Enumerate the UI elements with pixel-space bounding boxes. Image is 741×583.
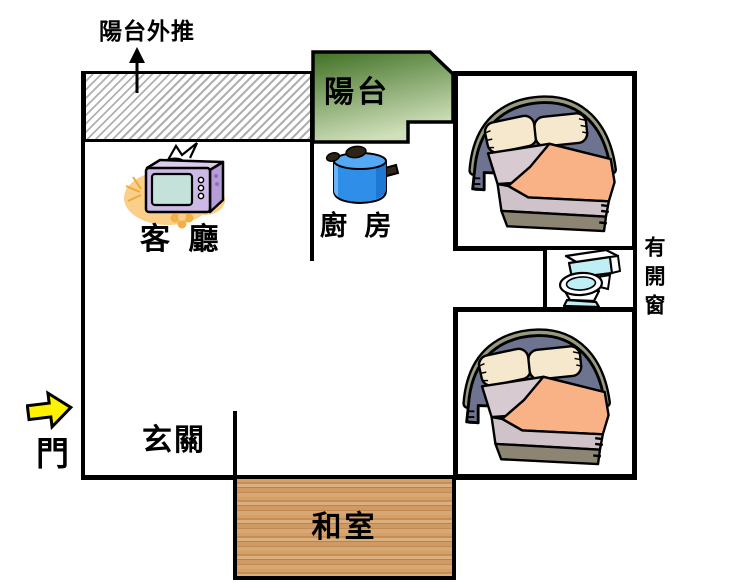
double-bed-icon [459, 320, 622, 470]
double-bed-icon [465, 87, 628, 237]
wall-entry-divider [233, 411, 237, 477]
kitchen-label: 廚 房 [320, 213, 395, 241]
door-entry-arrow-icon [26, 388, 76, 434]
pushed-out-balcony-area [83, 71, 313, 142]
living-room-label: 客 廳 [140, 224, 222, 256]
window-note-label: 有開窗 [643, 236, 665, 323]
balcony-pushout-label: 陽台外推 [99, 20, 195, 44]
tv-icon [120, 140, 238, 232]
cooking-pot-icon [321, 139, 401, 215]
floorplan: 和室 [0, 0, 741, 583]
entry-label: 玄關 [142, 425, 206, 457]
toilet-icon [550, 247, 630, 309]
tatami-room: 和室 [233, 475, 456, 580]
balcony-label: 陽台 [324, 77, 390, 109]
door-label: 門 [36, 437, 69, 472]
wall-kitchen-divider [310, 140, 314, 261]
tatami-room-label: 和室 [312, 512, 378, 544]
push-out-arrow-icon [127, 47, 147, 94]
